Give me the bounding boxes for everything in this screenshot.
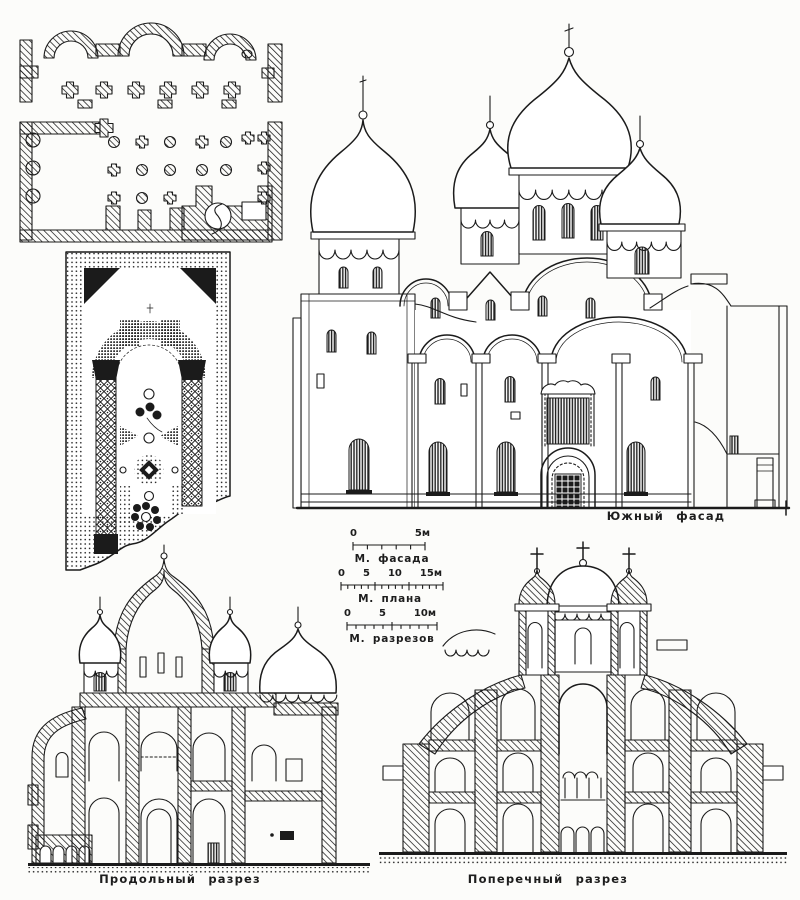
tick-label: 0 xyxy=(344,608,351,619)
sections-scale-numbers: 0 5 10м xyxy=(344,608,436,619)
tick-label: 10м xyxy=(414,608,436,619)
facade-domes xyxy=(454,24,685,278)
drawing-canvas xyxy=(0,0,800,900)
longitudinal-section-drawing xyxy=(28,545,370,875)
tick-label: 10 xyxy=(388,568,402,579)
tick-label: 15м xyxy=(420,568,442,579)
facade-scale-ruler xyxy=(352,542,426,551)
south-facade-drawing xyxy=(293,24,789,515)
plan-scale-label: М. плана xyxy=(344,593,436,605)
tick-label: 0 xyxy=(338,568,345,579)
plan-scale-ruler xyxy=(340,582,444,591)
sections-scale-label: М. разрезов xyxy=(338,633,446,645)
tick-label: 5 xyxy=(379,608,386,619)
sections-scale-ruler xyxy=(346,622,438,631)
tick-label: 0 xyxy=(350,528,357,539)
floor-plan-drawing xyxy=(20,23,282,242)
mosaic-floor-fragment-drawing xyxy=(66,252,230,570)
facade-scale-label: М. фасада xyxy=(346,553,438,565)
caption-south-facade: Южный фасад xyxy=(586,509,746,523)
facade-scale-numbers: 0 5м xyxy=(350,528,430,539)
tick-label: 5 xyxy=(363,568,370,579)
tick-label: 5м xyxy=(415,528,430,539)
plan-scale-numbers: 0 5 10 15м xyxy=(338,568,442,579)
caption-longitudinal-section: Продольный разрез xyxy=(95,872,265,886)
caption-transverse-section: Поперечный разрез xyxy=(462,872,634,886)
facade-annex xyxy=(691,274,787,508)
architectural-plate: 0 5м М. фасада 0 5 10 15м М. плана 0 5 1… xyxy=(0,0,800,900)
scale-bars: 0 5м М. фасада 0 5 10 15м М. плана 0 5 1… xyxy=(338,528,578,646)
